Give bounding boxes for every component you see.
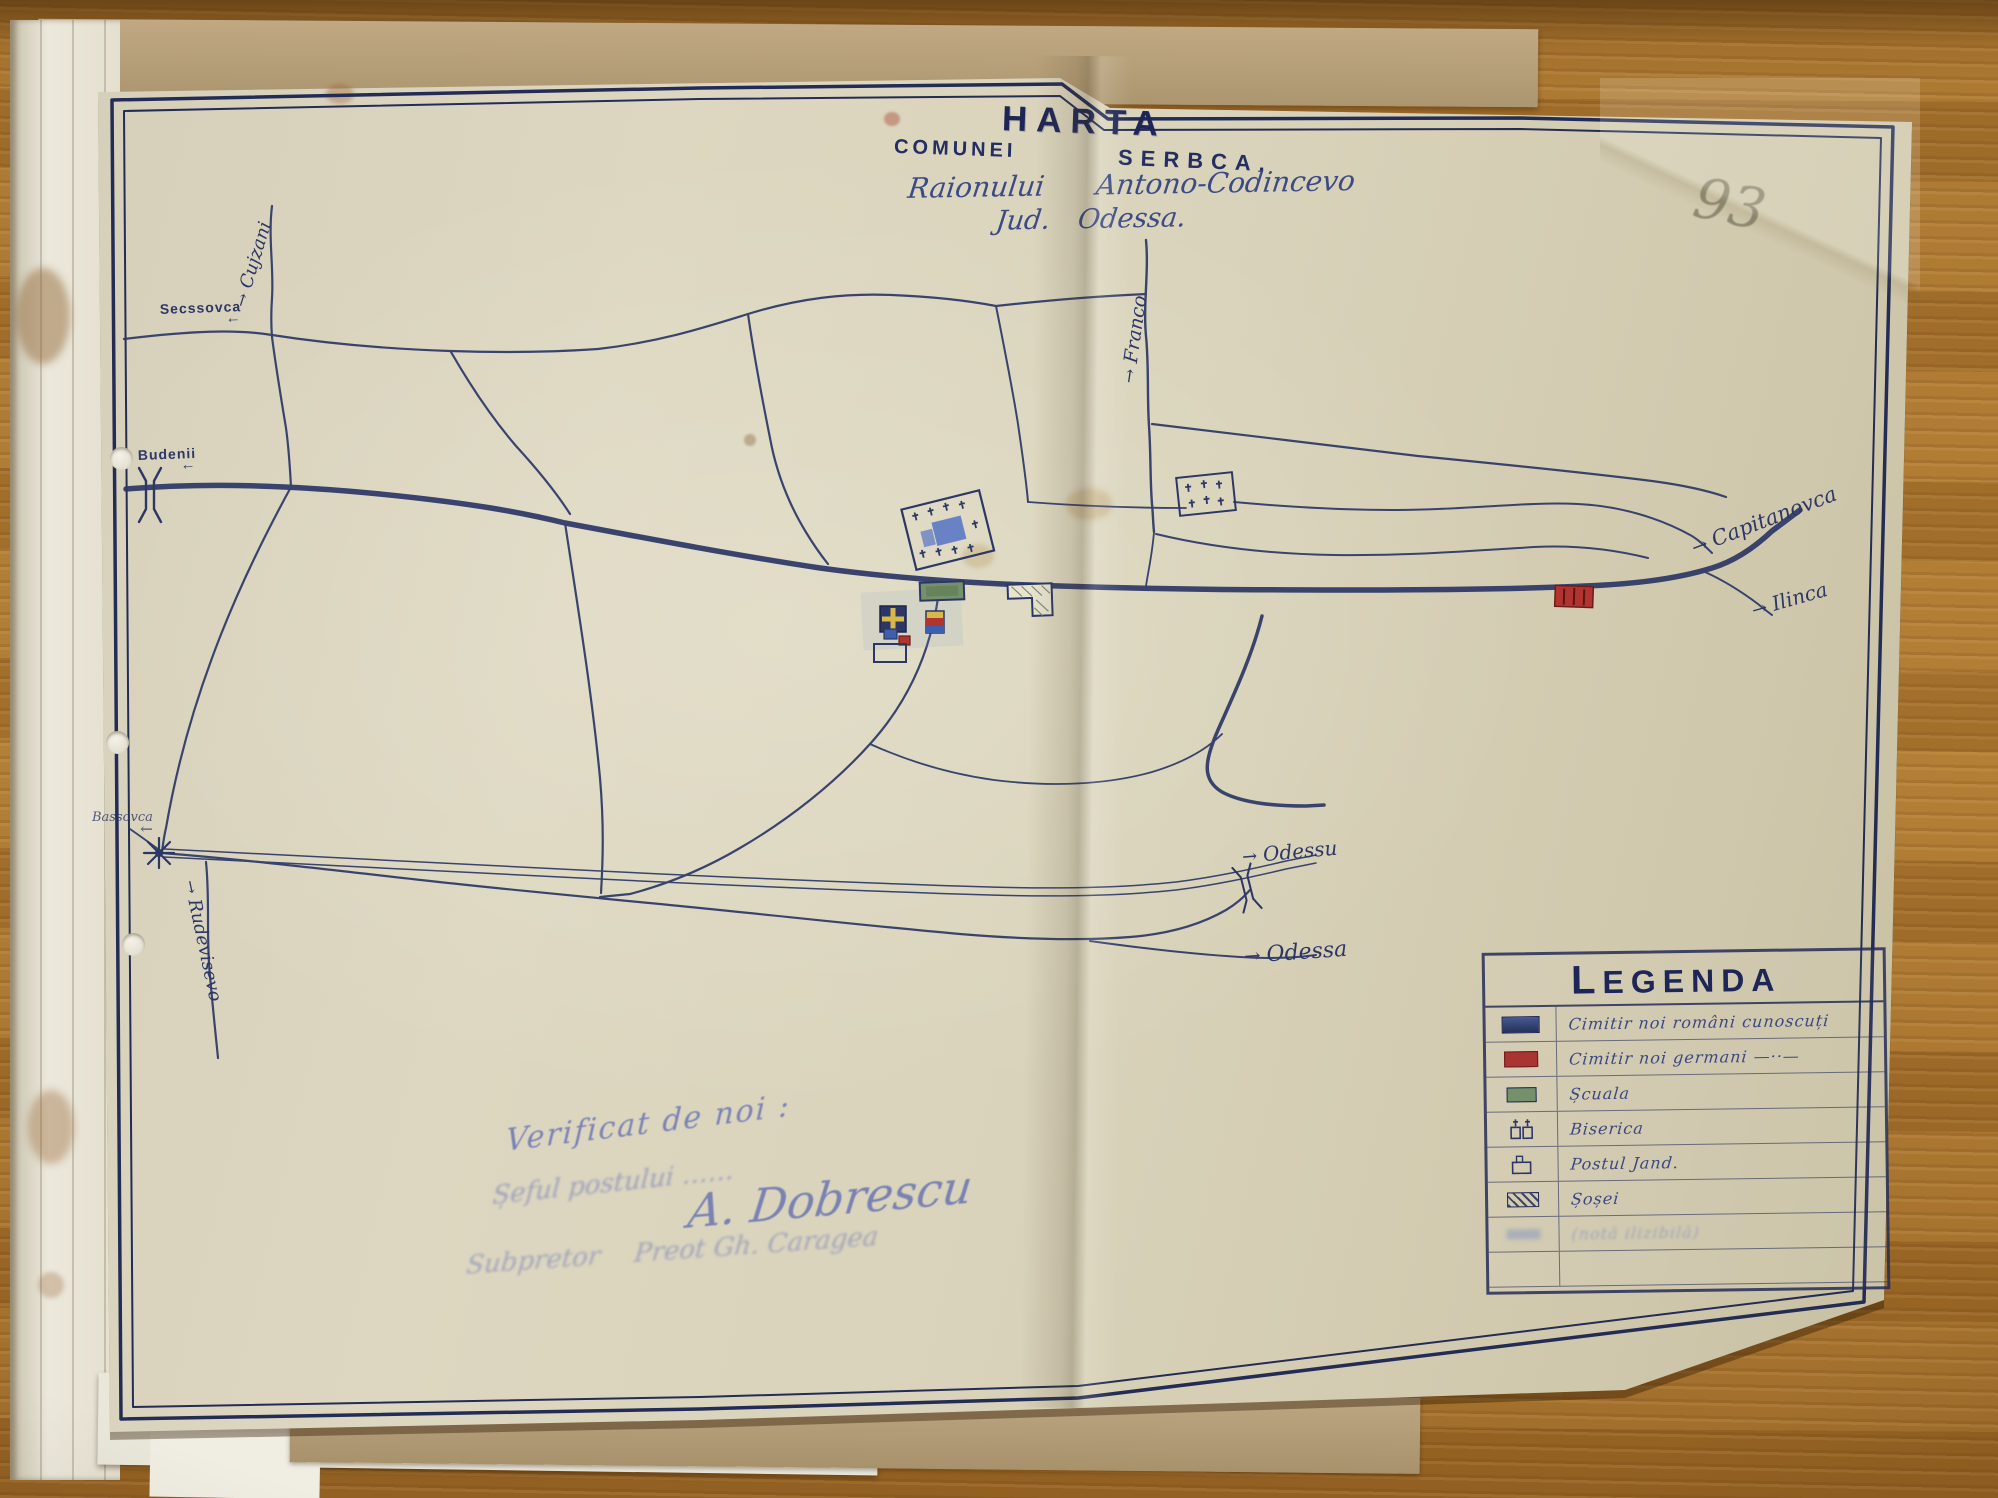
highway-swatch	[1488, 1182, 1559, 1217]
legend-row-faint: (notă ilizibilă)	[1488, 1212, 1886, 1253]
legend-row-label: Șoșei	[1558, 1188, 1620, 1208]
map-label-budenii: Budenii←	[138, 445, 197, 475]
legend-row-label: Șcuala	[1557, 1083, 1631, 1103]
romanian-cemetery-swatch	[1485, 1007, 1556, 1042]
legend-row-label: Cimitir noi români cunoscuți	[1556, 1010, 1831, 1033]
direction-arrow-icon: →	[180, 878, 201, 895]
legend-row-label: Postul Jand.	[1558, 1153, 1680, 1174]
german-cemetery-swatch	[1486, 1042, 1557, 1077]
legend-row: Biserica	[1487, 1107, 1885, 1148]
striped-building-symbol	[926, 611, 944, 633]
legend-row-label: (notă ilizibilă)	[1559, 1222, 1701, 1243]
church-symbol	[880, 606, 906, 632]
legend-row: Cimitir noi germani —··—	[1486, 1037, 1884, 1078]
legend-row: Postul Jand.	[1487, 1142, 1885, 1183]
fold-crease	[1020, 55, 1133, 1408]
map-label-secssovca: Secssovca←	[160, 298, 242, 329]
road-junction-star	[144, 838, 174, 868]
cemetery-symbol-2	[1176, 472, 1236, 516]
map-label-bassovca: Bassovca←	[92, 810, 153, 838]
legend-row: Șcuala	[1486, 1072, 1884, 1113]
church-icon	[1487, 1112, 1558, 1147]
map-title-comunei: COMUNEI	[894, 136, 1017, 163]
corner-crease	[1600, 78, 1920, 378]
direction-arrow-icon: →	[1241, 846, 1258, 868]
legend-row-empty	[1489, 1247, 1887, 1288]
cemetery-german-symbol	[1555, 585, 1594, 607]
village-symbols	[861, 472, 1594, 662]
pencil-note-swatch	[1488, 1217, 1559, 1252]
small-blue-building	[884, 629, 897, 639]
punch-hole	[122, 933, 145, 956]
cemetery-romanian-symbol	[901, 490, 994, 570]
direction-arrow-icon: →	[1243, 944, 1261, 968]
school-symbol	[920, 581, 965, 601]
legend-row: Cimitir noi români cunoscuți	[1485, 1002, 1883, 1043]
raion-label: Raionului	[906, 169, 1046, 204]
gendarme-post-icon	[1487, 1147, 1558, 1182]
legend-row-label: Cimitir noi germani —··—	[1556, 1046, 1801, 1068]
legend-box: LEGENDA Cimitir noi români cunoscuți Cim…	[1482, 947, 1891, 1295]
legend-row: Șoșei	[1488, 1177, 1886, 1218]
punch-hole	[106, 731, 129, 754]
legend-title: LEGENDA	[1485, 950, 1884, 1008]
school-swatch	[1486, 1077, 1557, 1112]
raion-name: Antono-Codincevo	[1094, 164, 1357, 202]
photo-scene: HARTA COMUNEI SERBCA. RaionuluiAntono-Co…	[0, 0, 1998, 1498]
legend-row-label: Biserica	[1557, 1118, 1645, 1138]
punch-hole	[110, 447, 133, 470]
empty-symbol-cell	[1489, 1252, 1560, 1287]
